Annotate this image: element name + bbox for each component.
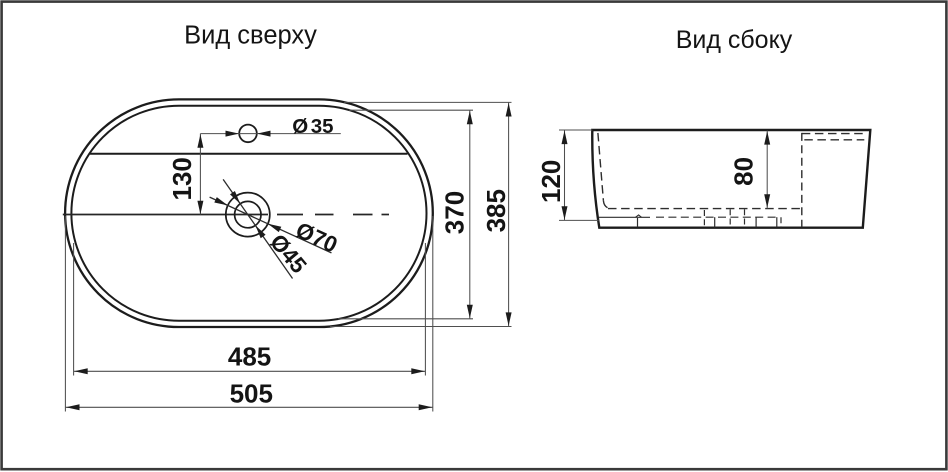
svg-text:Вид сбоку: Вид сбоку [676, 26, 793, 54]
svg-text:80: 80 [729, 157, 759, 186]
svg-text:505: 505 [230, 379, 273, 409]
svg-text:120: 120 [536, 160, 566, 203]
svg-text:485: 485 [228, 341, 271, 371]
svg-text:Ø35: Ø35 [292, 115, 333, 138]
svg-text:385: 385 [481, 189, 511, 232]
svg-text:Вид сверху: Вид сверху [184, 22, 317, 50]
svg-text:130: 130 [167, 157, 197, 200]
svg-text:370: 370 [440, 191, 470, 234]
